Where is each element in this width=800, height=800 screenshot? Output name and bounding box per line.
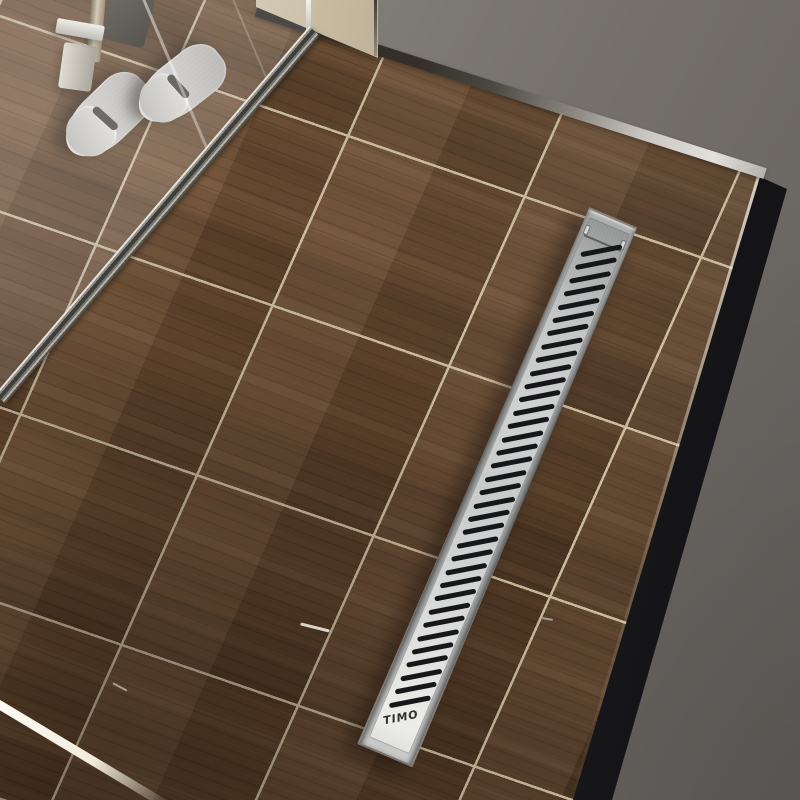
drain-slot [541, 337, 583, 349]
drain-slot [417, 629, 459, 641]
drain-slot [496, 443, 538, 455]
drain-slot [513, 403, 555, 415]
drain-slot [547, 324, 589, 336]
drain-slot [575, 258, 617, 270]
drain-slot [406, 655, 448, 667]
drain-slot [502, 430, 544, 442]
wall-corner-line [374, 0, 377, 56]
drain-slot [462, 523, 504, 535]
drain-slot [552, 311, 594, 323]
brand-logo: TIMO [378, 707, 424, 728]
drain-slot [389, 695, 431, 707]
drain-slot [434, 589, 476, 601]
drain-slot [580, 244, 622, 256]
drain-slot [558, 297, 600, 309]
drain-slot [445, 562, 487, 574]
drain-slot [490, 456, 532, 468]
drain-slot [400, 668, 442, 680]
drain-slot [412, 642, 454, 654]
drain-slot [428, 602, 470, 614]
drain-slot [479, 483, 521, 495]
drain-slot [457, 536, 499, 548]
drain-slot [518, 390, 560, 402]
mounting-clip [582, 224, 591, 235]
drain-slot [440, 576, 482, 588]
drain-slot [563, 284, 605, 296]
drain-slot [524, 377, 566, 389]
drain-slot [423, 615, 465, 627]
drain-slot [507, 417, 549, 429]
drain-slot [473, 496, 515, 508]
drain-slot [468, 509, 510, 521]
drain-slot [485, 470, 527, 482]
scene-render: TIMO [0, 0, 800, 800]
drain-slot [569, 271, 611, 283]
drain-slot [535, 350, 577, 362]
drain-slot [395, 682, 437, 694]
drain-slot [451, 549, 493, 561]
drain-slot [530, 364, 572, 376]
